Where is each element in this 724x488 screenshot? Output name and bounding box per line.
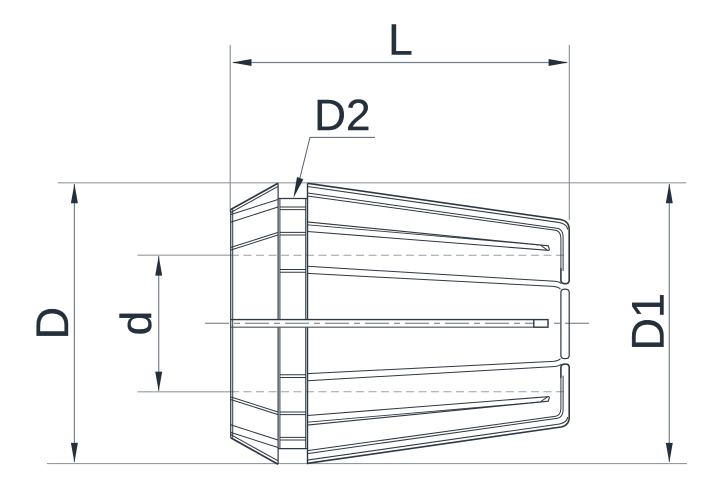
- svg-text:D1: D1: [623, 293, 674, 351]
- svg-text:D: D: [27, 307, 78, 340]
- svg-text:d: d: [112, 311, 161, 335]
- svg-text:D2: D2: [314, 91, 370, 140]
- svg-text:L: L: [388, 16, 412, 65]
